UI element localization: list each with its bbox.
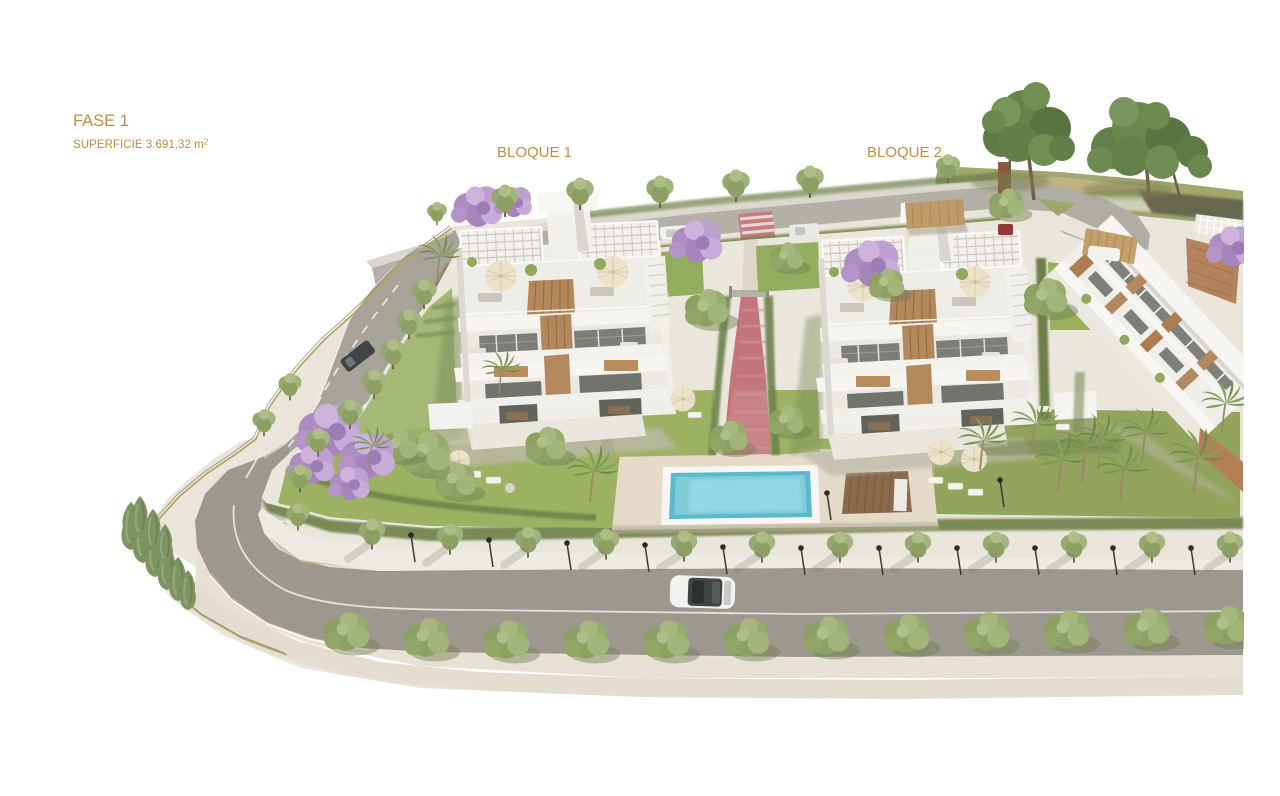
svg-text:BLOQUE 1: BLOQUE 1 xyxy=(497,144,572,161)
svg-text:BLOQUE 2: BLOQUE 2 xyxy=(867,144,942,161)
svg-text:FASE 1: FASE 1 xyxy=(73,112,129,130)
svg-text:SUPERFICIE 3.691,32 m2: SUPERFICIE 3.691,32 m2 xyxy=(73,138,208,152)
